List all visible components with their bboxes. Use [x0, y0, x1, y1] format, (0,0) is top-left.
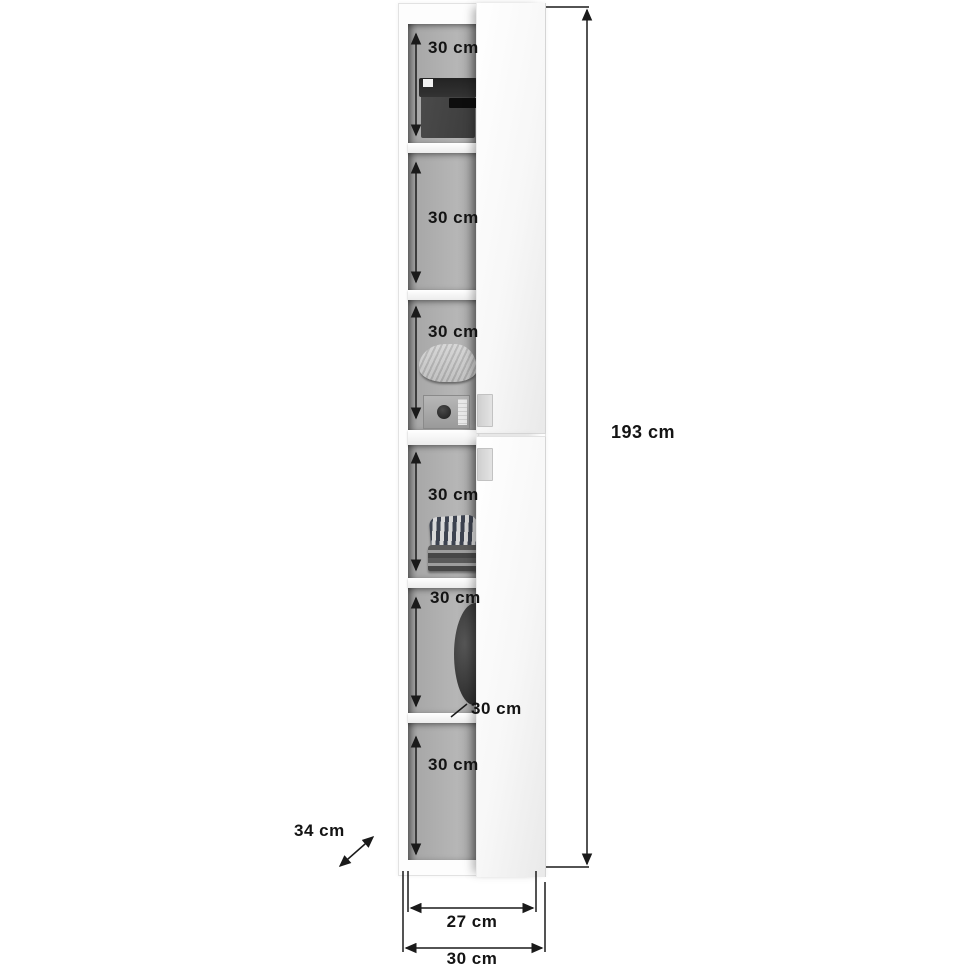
unit-divider: [408, 430, 478, 445]
inner-width-label: 27 cm: [436, 912, 508, 932]
shelf: [408, 713, 478, 723]
compartment-2-height-label: 30 cm: [428, 208, 479, 228]
cabinet-interior: [408, 24, 478, 860]
safe-keypad: [458, 399, 467, 425]
compartment-6: [408, 723, 478, 860]
compartment-6-height-label: 30 cm: [428, 755, 479, 775]
lower-door-handle: [477, 448, 493, 481]
total-height-label: 193 cm: [611, 422, 675, 443]
shelf: [408, 143, 478, 153]
mini-safe-icon: [423, 395, 470, 429]
compartment-4-height-label: 30 cm: [428, 485, 479, 505]
compartment-5-height-label: 30 cm: [430, 588, 481, 608]
lower-door: [476, 436, 546, 877]
shelf: [408, 290, 478, 300]
upper-door: [476, 3, 546, 434]
compartment-3-height-label: 30 cm: [428, 322, 479, 342]
box-handle-slot: [449, 98, 477, 108]
storage-box-icon: [421, 78, 475, 138]
safe-dial: [437, 405, 451, 419]
upper-door-handle: [477, 394, 493, 427]
dimension-diagram: 30 cm 30 cm 30 cm 30 cm 30 cm 30 cm 30 c…: [0, 0, 970, 971]
shelf: [408, 578, 478, 588]
outer-width-label: 30 cm: [434, 949, 510, 969]
shelf-depth-label: 30 cm: [471, 699, 522, 719]
folded-blanket-icon: [419, 344, 477, 382]
folded-clothes-icon: [428, 545, 480, 571]
box-label-tag: [423, 79, 433, 87]
compartment-1-height-label: 30 cm: [428, 38, 479, 58]
depth-label: 34 cm: [294, 821, 345, 841]
